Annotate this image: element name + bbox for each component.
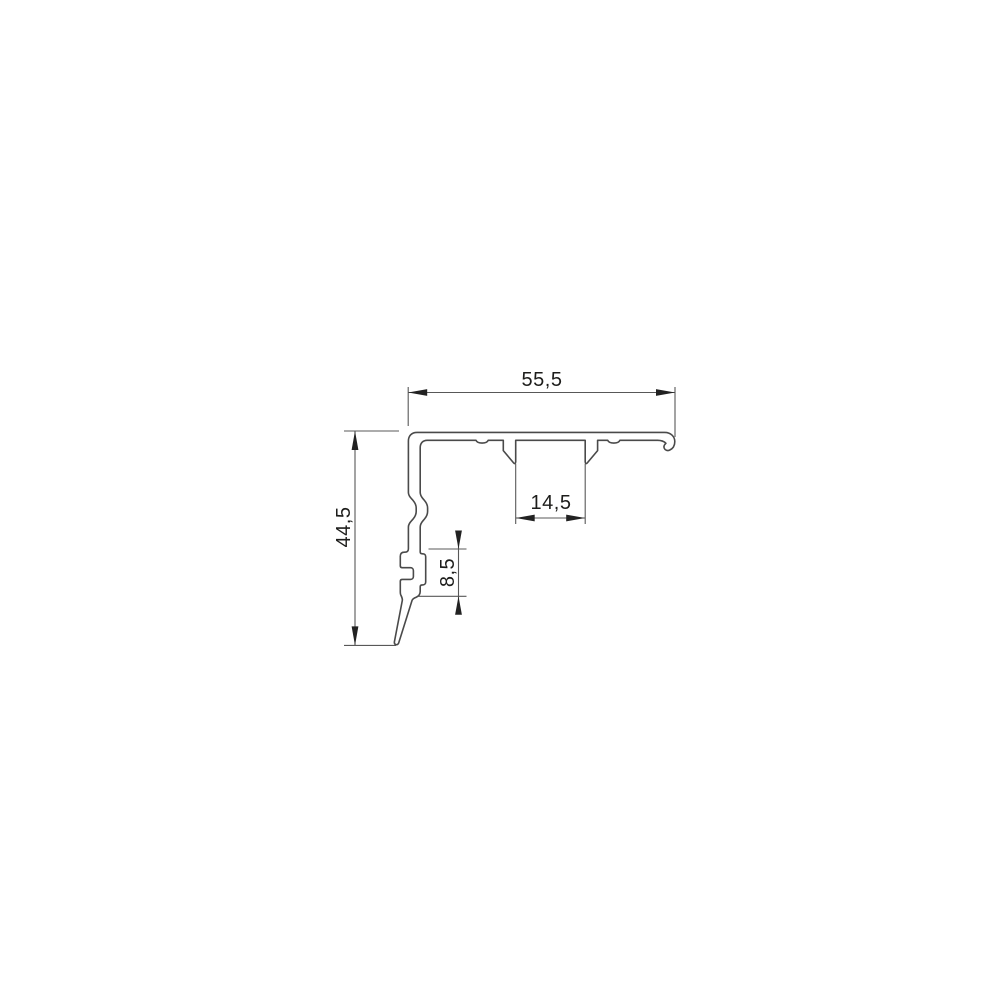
profile-section — [394, 432, 674, 644]
arrowhead-right-icon — [566, 515, 585, 522]
dimension-label: 44,5 — [333, 507, 355, 548]
dimension-overall-width: 55,5 — [408, 369, 675, 437]
dimension-label: 55,5 — [522, 369, 563, 391]
arrowhead-down-icon — [455, 531, 462, 550]
arrowhead-down-icon — [352, 626, 359, 645]
drawing-page: 55,5 44,5 14,5 8,5 — [0, 0, 1000, 1000]
dimension-slot-width: 14,5 — [516, 464, 586, 524]
dimension-label: 8,5 — [437, 558, 459, 587]
arrowhead-left-icon — [408, 389, 427, 396]
dimension-overall-height: 44,5 — [333, 431, 399, 645]
arrowhead-right-icon — [656, 389, 675, 396]
dimension-label: 14,5 — [531, 492, 572, 514]
arrowhead-up-icon — [455, 596, 462, 615]
arrowhead-up-icon — [352, 431, 359, 450]
technical-drawing-canvas: 55,5 44,5 14,5 8,5 — [0, 0, 1000, 1000]
arrowhead-left-icon — [516, 515, 535, 522]
profile-outline — [394, 432, 674, 644]
